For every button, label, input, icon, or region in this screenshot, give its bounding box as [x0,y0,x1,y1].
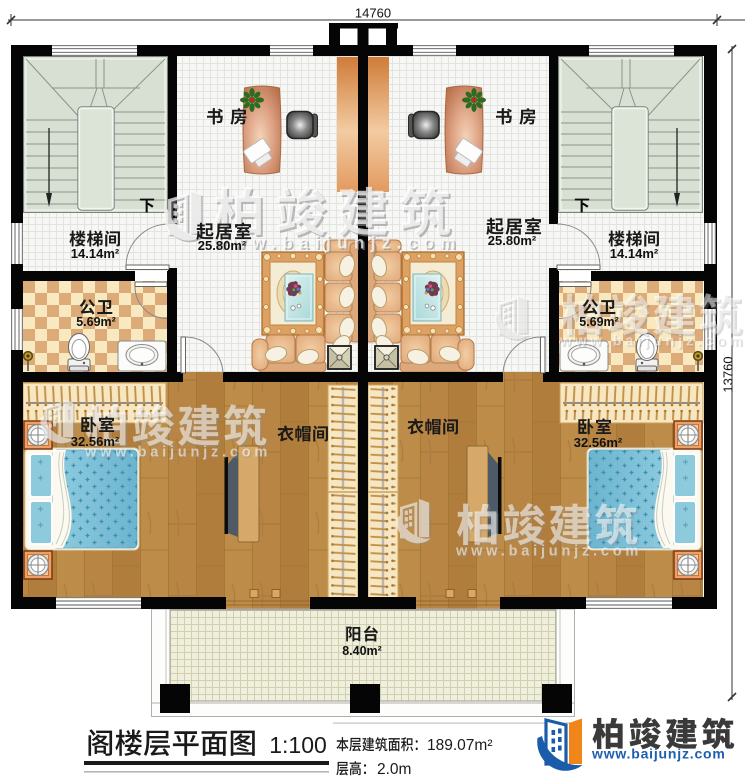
svg-text:25.80m²: 25.80m² [198,238,247,253]
svg-text:14760: 14760 [355,6,391,21]
svg-text:1:100: 1:100 [269,732,327,758]
svg-text:189.07m²: 189.07m² [427,737,492,754]
svg-text:14.14m²: 14.14m² [71,246,120,261]
svg-text:25.80m²: 25.80m² [488,233,537,248]
svg-text:8.40m²: 8.40m² [342,644,382,658]
svg-text:5.69m²: 5.69m² [579,315,619,329]
svg-text:14.14m²: 14.14m² [610,246,659,261]
svg-text:2.0m: 2.0m [377,761,411,778]
svg-text:5.69m²: 5.69m² [76,315,116,329]
svg-text:www.baijunjz.com: www.baijunjz.com [455,544,642,560]
svg-text:32.56m²: 32.56m² [71,434,120,449]
svg-text:www.baijunjz.com: www.baijunjz.com [591,746,726,762]
svg-text:32.56m²: 32.56m² [574,435,623,450]
svg-text:www.baijunjz.com: www.baijunjz.com [559,334,746,350]
svg-text:13760: 13760 [721,356,736,392]
